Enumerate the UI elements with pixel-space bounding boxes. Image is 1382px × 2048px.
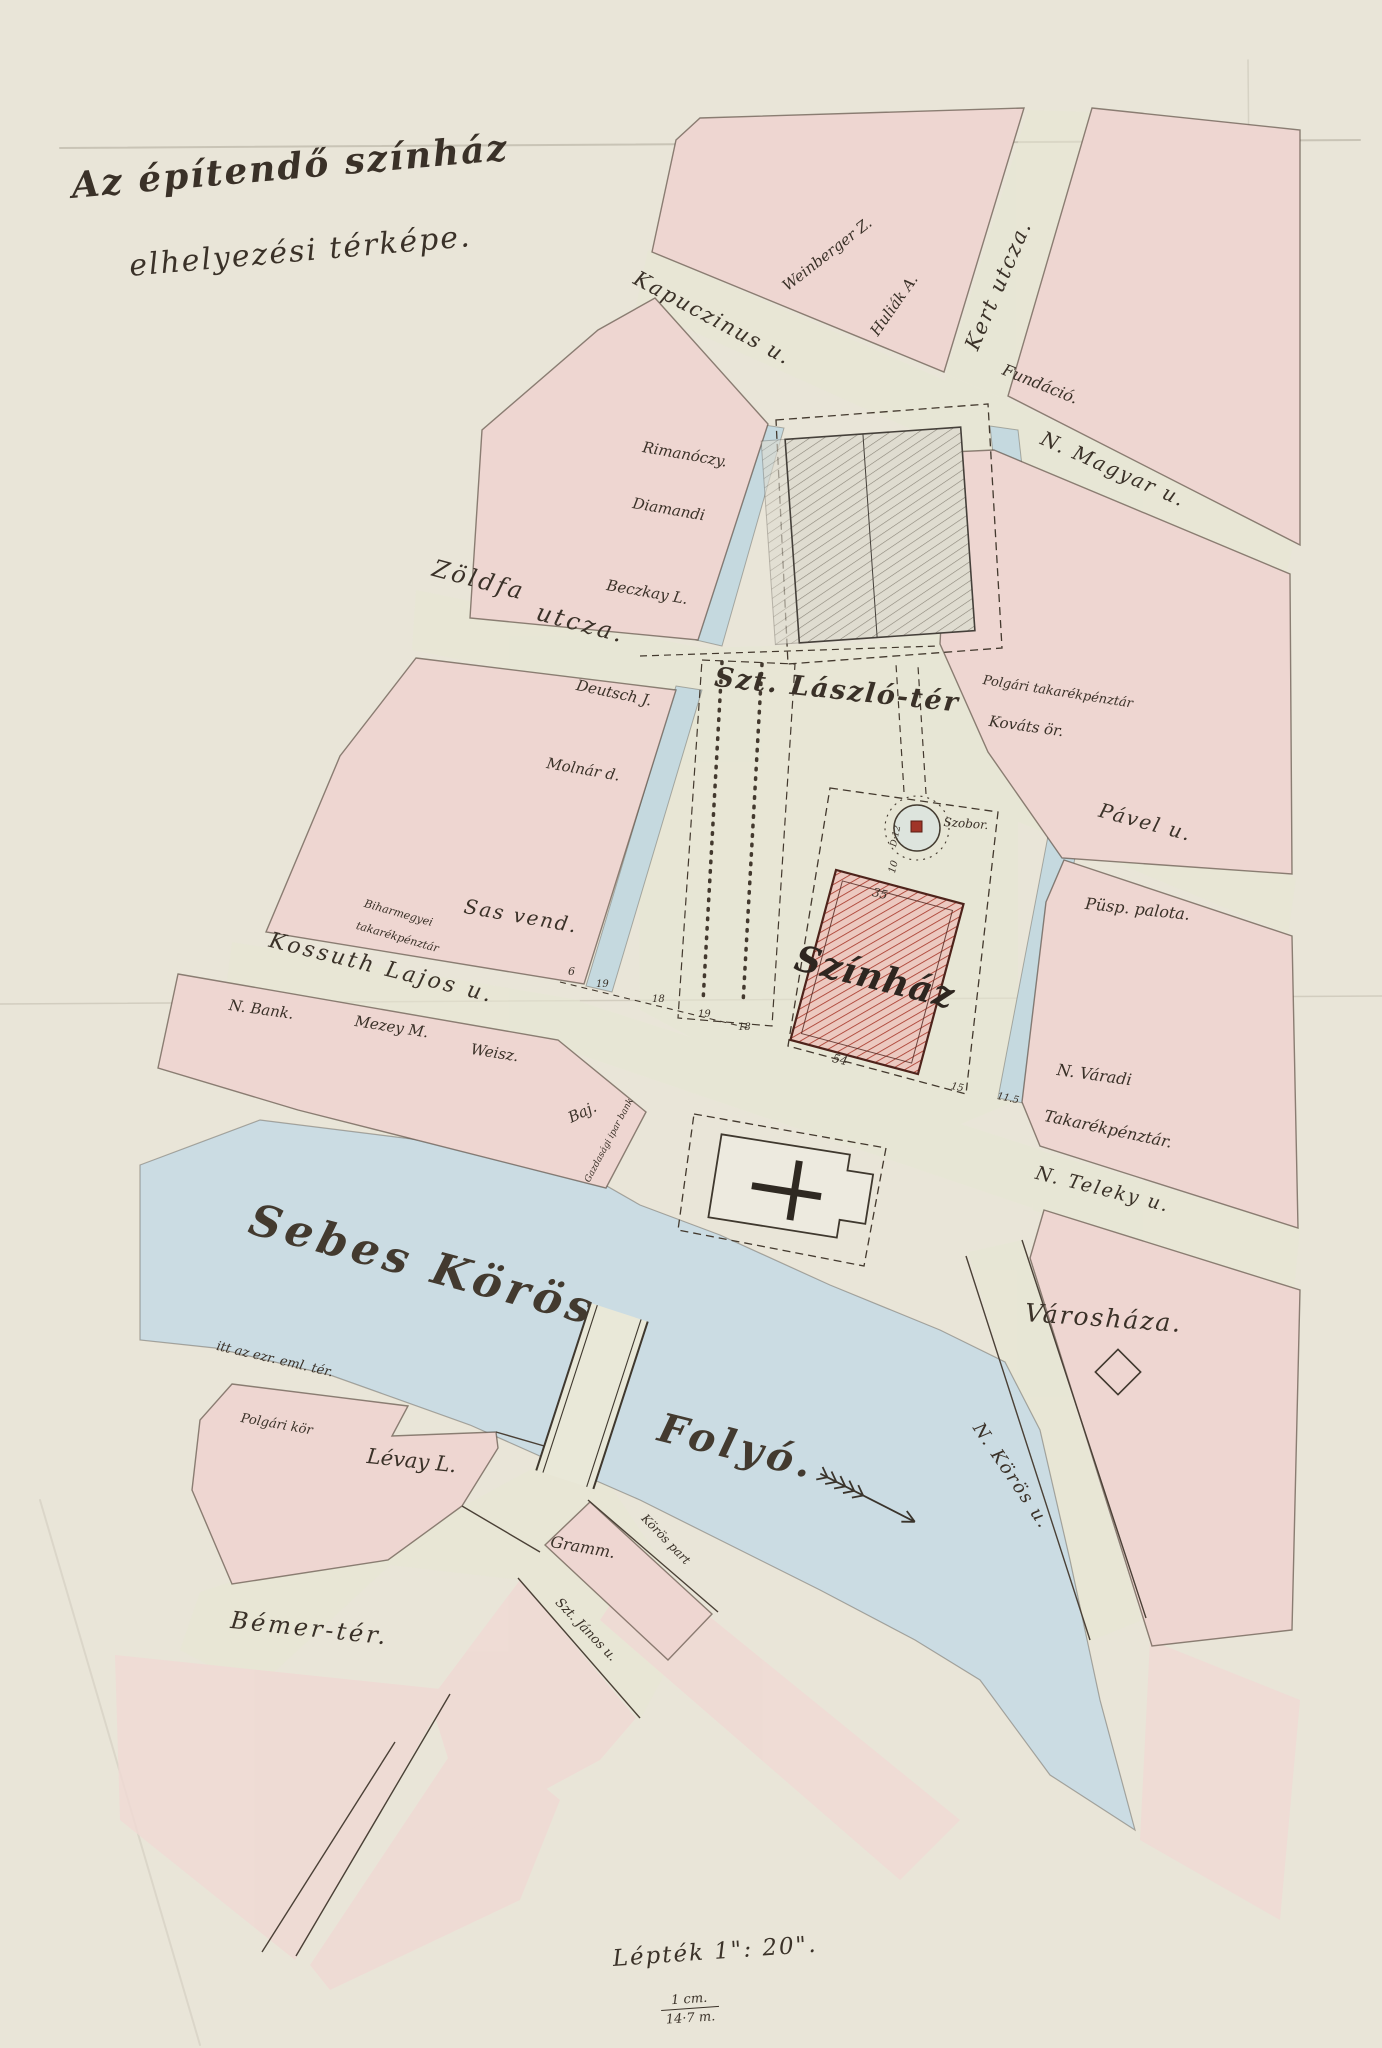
dimension-c3: 18	[652, 995, 665, 1005]
statue-base-square	[911, 821, 922, 832]
dimension-c5: 18	[738, 1023, 751, 1033]
hatched-block	[785, 427, 975, 643]
dimension-bottom: 54	[831, 1052, 849, 1067]
statue-label: Szobor.	[943, 816, 989, 831]
old-theatre-site	[761, 427, 975, 644]
dimension-c1: 6	[568, 966, 575, 977]
dimension-c4: 19	[698, 1010, 711, 1020]
church-building	[708, 1134, 875, 1241]
map-canvas: Az építendő színház elhelyezési térképe.…	[0, 0, 1382, 2048]
dimension-top: 35	[871, 886, 889, 901]
scale-fraction: 1 cm. 14·7 m.	[660, 1990, 720, 2028]
wash-bottom-right	[1140, 1640, 1300, 1920]
dimension-c2: 19	[596, 980, 609, 990]
